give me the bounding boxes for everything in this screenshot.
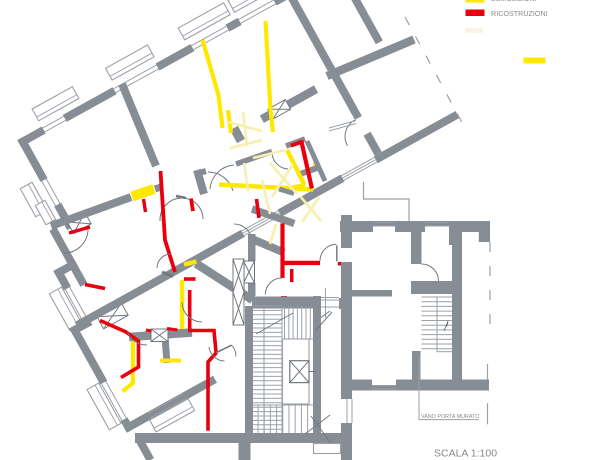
svg-text:RICOSTRUZIONI: RICOSTRUZIONI [491, 9, 548, 18]
svg-text:VANO PORTA MURATO: VANO PORTA MURATO [421, 414, 480, 420]
svg-text:SCALA 1:100: SCALA 1:100 [434, 448, 497, 460]
svg-text:DEMOLIZIONI: DEMOLIZIONI [491, 0, 537, 3]
